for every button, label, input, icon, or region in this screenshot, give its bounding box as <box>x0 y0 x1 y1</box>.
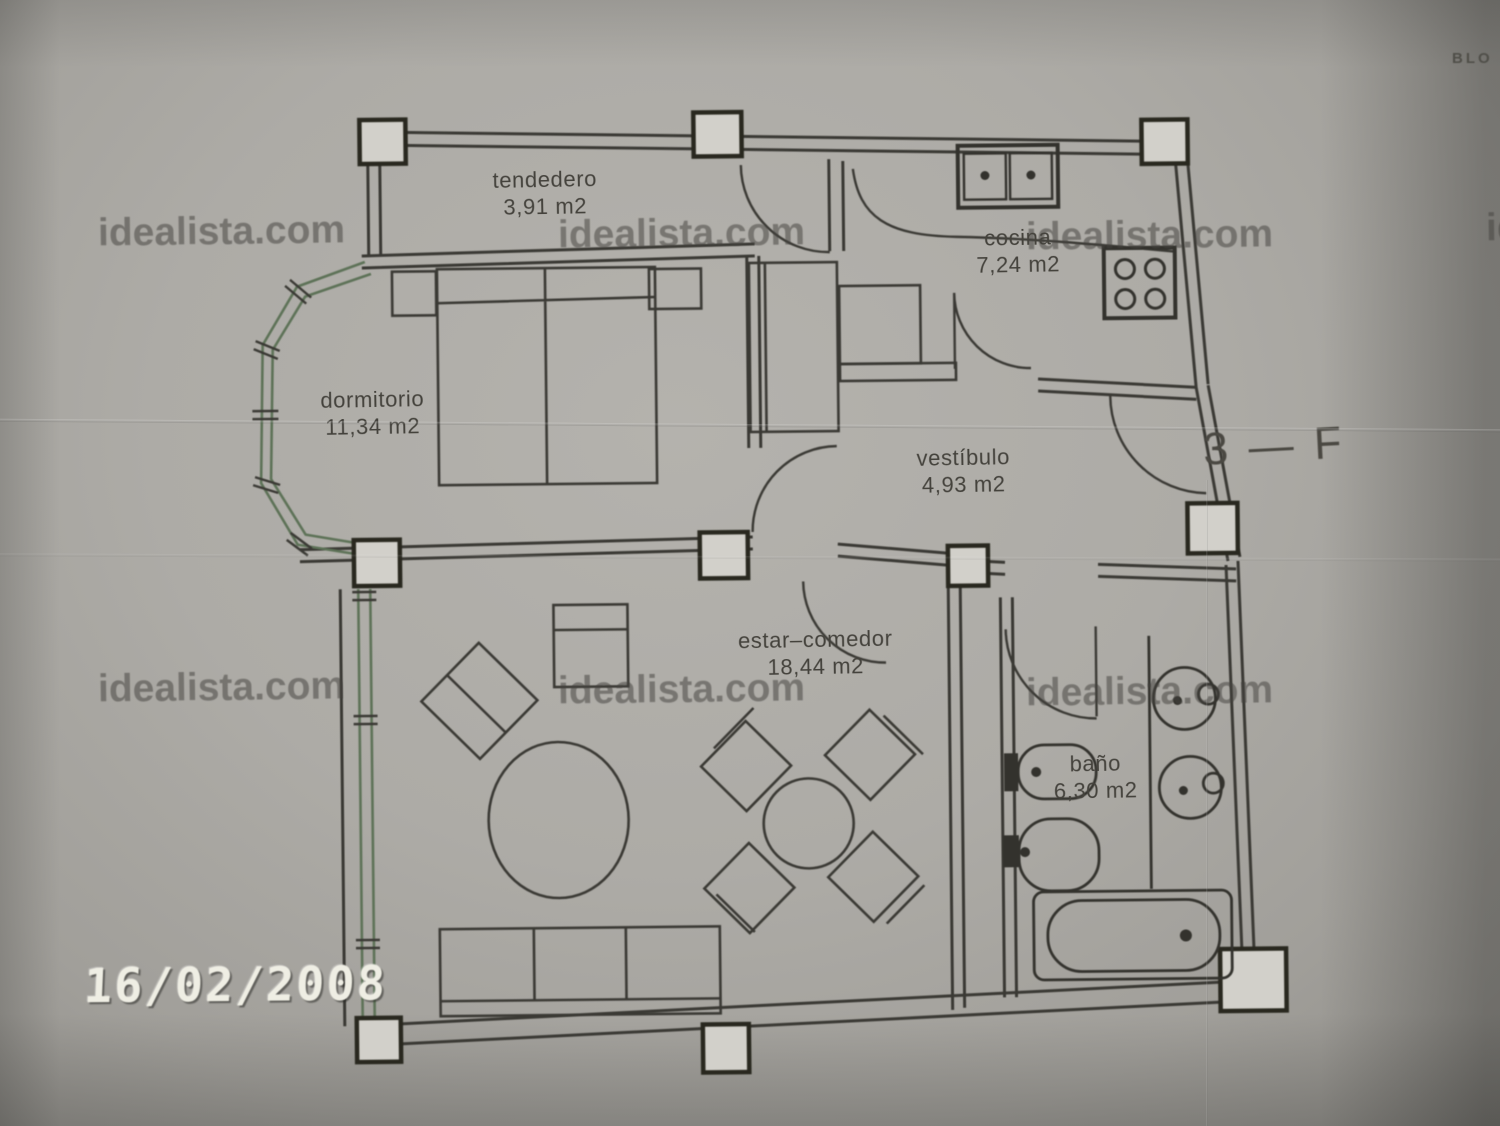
floorplan-drawing <box>0 0 1500 1126</box>
dining-chair <box>704 843 795 934</box>
room-area: 7,24 m2 <box>933 250 1103 280</box>
room-area: 11,34 m2 <box>270 411 475 442</box>
vestibulo-closets <box>749 261 957 432</box>
coffee-table <box>488 741 630 898</box>
idealista-watermark-partial: idealista.com <box>1486 203 1500 250</box>
wardrobe <box>839 285 956 381</box>
dining-chair <box>828 831 925 924</box>
nightstand <box>649 268 701 309</box>
room-area: 3,91 m2 <box>455 191 635 221</box>
window-wall <box>259 262 379 1027</box>
double-bed <box>437 267 657 485</box>
dining-chair <box>825 709 924 800</box>
door-swing-cocina <box>954 292 1031 369</box>
room-name: vestíbulo <box>866 442 1061 472</box>
nightstand <box>392 271 436 315</box>
corner-text: BLO <box>1452 50 1493 67</box>
idealista-watermark: idealista.com <box>98 664 346 711</box>
sofa <box>440 926 721 1016</box>
room-label-estar-comedor: estar–comedor 18,44 m2 <box>698 624 934 682</box>
washbasin <box>1159 756 1224 819</box>
bidet <box>1003 818 1100 891</box>
room-label-tendedero: tendedero 3,91 m2 <box>455 164 636 221</box>
room-area: 4,93 m2 <box>866 469 1061 499</box>
room-name: estar–comedor <box>698 624 933 655</box>
room-label-bano: baño 6,30 m2 <box>1028 749 1164 805</box>
idealista-watermark: idealista.com <box>1026 668 1274 715</box>
room-name: baño <box>1028 749 1163 778</box>
room-name: cocina <box>933 223 1103 253</box>
room-name: dormitorio <box>270 384 475 415</box>
dining-table <box>763 778 854 869</box>
room-label-cocina: cocina 7,24 m2 <box>933 223 1104 280</box>
camera-date-stamp: 16/02/2008 <box>83 957 388 1015</box>
idealista-watermark: idealista.com <box>98 208 346 255</box>
bathtub <box>1033 890 1232 980</box>
door-swing-dormitorio <box>752 446 838 532</box>
room-name: tendedero <box>455 164 635 194</box>
room-label-vestibulo: vestíbulo 4,93 m2 <box>866 442 1062 499</box>
room-label-dormitorio: dormitorio 11,34 m2 <box>270 384 476 442</box>
door-swing-entrance <box>1110 395 1206 494</box>
closet <box>749 262 839 432</box>
room-area: 6,30 m2 <box>1028 776 1163 805</box>
floorplan-photo: idealista.com idealista.com idealista.co… <box>0 0 1500 1126</box>
handwritten-unit-label: 3 — F <box>1202 416 1347 475</box>
armchair <box>421 642 538 759</box>
room-area: 18,44 m2 <box>698 651 933 682</box>
dormitorio-furniture <box>392 266 703 485</box>
dining-chair <box>700 708 791 812</box>
